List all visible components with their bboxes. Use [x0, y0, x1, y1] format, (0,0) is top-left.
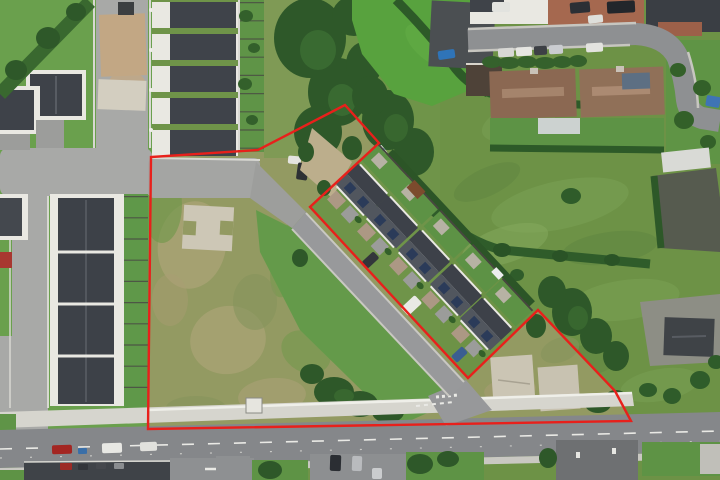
gate-post: [612, 448, 616, 454]
kiosk: [246, 398, 262, 413]
tree: [437, 451, 459, 467]
estate-house-roof: [170, 2, 236, 28]
bush: [693, 80, 711, 96]
car-red: [60, 463, 72, 470]
tree-light: [300, 30, 336, 70]
hedge-bush: [238, 78, 252, 90]
field-bush: [561, 188, 581, 204]
hedge-bush: [539, 448, 557, 468]
side-road: [216, 456, 250, 480]
hedge-bush: [639, 383, 657, 397]
car-dark: [96, 463, 106, 469]
car-white: [492, 2, 510, 12]
car-grey: [372, 468, 382, 479]
car-white: [588, 14, 604, 23]
path-south: [700, 444, 720, 474]
roof-ridge: [672, 336, 706, 337]
red-shed: [0, 252, 12, 268]
aerial-site-photo: [0, 0, 720, 480]
hedge-bush: [246, 115, 258, 125]
greenhouse: [538, 118, 580, 134]
aerial-photo-canvas: [0, 0, 720, 480]
van-white: [102, 443, 122, 454]
hedge-bush: [663, 388, 681, 404]
hedge-bush: [690, 371, 710, 389]
tree-light: [568, 306, 588, 330]
car-silver: [549, 45, 563, 55]
solar-array: [622, 73, 651, 90]
site-entrance-road: [148, 158, 260, 198]
tree: [5, 60, 27, 80]
car-dark: [78, 464, 88, 470]
hedge-bush: [248, 43, 260, 53]
estate-road: [0, 148, 152, 196]
car-red: [52, 445, 72, 455]
tree: [407, 454, 433, 474]
hedgerow-bush: [493, 243, 511, 257]
excavator: [118, 2, 134, 15]
tree: [292, 249, 308, 267]
hedge: [490, 148, 664, 150]
hedge-bush: [517, 56, 537, 68]
hedge-bush: [569, 55, 587, 67]
tree: [352, 76, 388, 116]
grass-verge: [0, 414, 16, 430]
house-roof: [0, 198, 22, 236]
chimney: [616, 66, 624, 72]
driveway: [36, 120, 64, 148]
hedgerow-bush: [552, 250, 568, 262]
car-dark: [534, 46, 547, 56]
bush: [674, 111, 694, 129]
chimney: [530, 68, 538, 74]
tree: [300, 364, 324, 384]
fascia: [24, 461, 170, 462]
bush: [298, 142, 314, 162]
estate-house-roof: [170, 66, 236, 92]
car-white: [498, 48, 514, 58]
hedge-bush: [498, 57, 520, 69]
tree: [36, 27, 60, 49]
pad-notch: [220, 221, 234, 236]
car-grey: [114, 463, 124, 469]
concrete-pad: [97, 79, 146, 111]
van-dark: [330, 455, 342, 471]
car-white: [586, 43, 603, 53]
estate-house-roof: [170, 98, 236, 124]
terrace-gardens: [124, 194, 148, 408]
hedgerow-bush: [604, 254, 620, 266]
pad-notch: [183, 221, 197, 236]
tree: [538, 276, 566, 308]
van-white: [516, 47, 532, 57]
entrance-drive: [556, 440, 638, 480]
scrub-grass: [233, 274, 277, 330]
tree: [258, 461, 282, 479]
hedge-bush: [239, 10, 253, 22]
bush: [342, 136, 362, 160]
car-white: [140, 442, 157, 452]
gate-post: [576, 452, 580, 458]
tree: [66, 3, 86, 21]
bush: [670, 63, 686, 77]
tree-light: [384, 114, 408, 142]
van-dark: [607, 0, 636, 13]
bush: [700, 135, 716, 149]
car-silver: [352, 456, 363, 471]
driveway: [0, 134, 30, 150]
dirt-patch: [99, 13, 147, 77]
scrub-patch: [152, 274, 188, 326]
car-blue-small: [78, 448, 87, 454]
car-dark: [570, 1, 591, 14]
hedge-bush: [552, 56, 572, 68]
grass-sw: [0, 470, 24, 480]
estate-house-roof: [170, 34, 236, 60]
tree: [603, 341, 629, 371]
